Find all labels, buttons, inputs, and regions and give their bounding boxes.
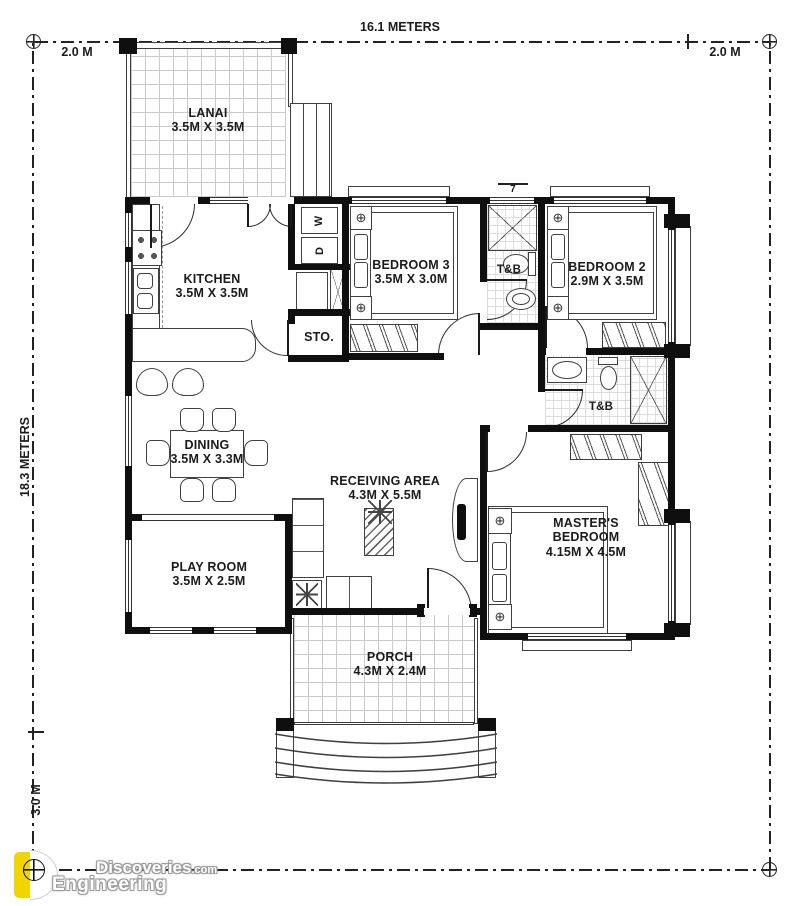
lamp-glyph: ⊕ (495, 609, 506, 625)
window-sill (522, 640, 632, 651)
door-swing (428, 568, 472, 612)
window (554, 197, 646, 204)
dimension-right-setback: 2.0 M (703, 45, 747, 59)
wall (288, 264, 350, 270)
dimension-top-width: 16.1 METERS (330, 20, 470, 34)
lanai-wall (288, 52, 293, 107)
window (125, 396, 132, 466)
nightstand-lamp-icon: ⊕ (350, 296, 372, 320)
dimension-tick (28, 731, 44, 733)
closet (570, 434, 642, 460)
dryer-icon: D (301, 237, 338, 264)
nightstand-lamp-icon: ⊕ (547, 296, 569, 320)
wall (538, 348, 546, 355)
washer-icon: W (301, 207, 338, 234)
window (210, 197, 252, 204)
property-line-right (769, 42, 771, 870)
room-name: BEDROOM 2 (544, 260, 670, 274)
room-size: 3.5M X 3.5M (128, 120, 288, 134)
window (352, 197, 446, 204)
dimension-left-setback: 2.0 M (55, 45, 99, 59)
door-leaf (487, 279, 527, 281)
window-tag: 7 (503, 184, 523, 195)
door-swing (251, 320, 287, 356)
window (125, 262, 132, 314)
bay-window (675, 226, 691, 346)
lamp-glyph: ⊕ (356, 300, 367, 316)
toilet-icon (600, 366, 617, 390)
room-label-lanai: LANAI 3.5M X 3.5M (128, 106, 288, 135)
window-sill (348, 186, 450, 197)
property-line-left (32, 42, 34, 870)
toilet-tank (598, 357, 618, 365)
wall (586, 348, 675, 355)
nightstand-lamp-icon: ⊕ (488, 508, 512, 534)
room-name: STO. (296, 330, 342, 344)
door-swing (248, 204, 271, 227)
watermark-text: Engineering (52, 874, 167, 895)
shower-icon (488, 205, 537, 251)
cased-opening (142, 514, 274, 521)
door-casing (469, 604, 477, 617)
room-size: 3.5M X 3.0M (348, 272, 474, 286)
watermark-suffix: .com (191, 864, 217, 876)
plant-icon (368, 500, 392, 524)
plant-icon (296, 583, 318, 606)
stove-icon (132, 230, 162, 266)
room-label-toilet-bath-2: T&B (577, 401, 625, 414)
survey-pin-icon (762, 34, 777, 49)
wall (538, 425, 675, 432)
logo-crosshair-icon (23, 859, 45, 881)
room-label-bedroom3: BEDROOM 3 3.5M X 3.0M (348, 258, 474, 287)
shower-icon (630, 356, 667, 424)
pillow (354, 234, 368, 260)
column (281, 38, 297, 54)
room-size: 2.9M X 3.5M (544, 274, 670, 288)
room-name: LANAI (128, 106, 288, 120)
door-leaf (290, 204, 292, 227)
closet (350, 324, 418, 352)
dining-chair (212, 478, 236, 502)
lanai-wall (135, 42, 283, 49)
window (668, 525, 675, 621)
washer-label: W (313, 215, 325, 225)
wall (664, 214, 690, 228)
room-label-toilet-bath-1: T&B (487, 264, 531, 277)
room-name: T&B (487, 264, 531, 277)
room-name: DINING (143, 438, 271, 452)
lamp-glyph: ⊕ (495, 513, 506, 529)
room-name: T&B (577, 401, 625, 414)
porch-pier-cap (478, 718, 496, 731)
dining-chair (180, 408, 204, 432)
sink-basin (512, 293, 530, 305)
door-leaf (427, 568, 429, 612)
window (125, 540, 132, 612)
wall (664, 509, 690, 523)
closet (602, 322, 666, 348)
wall (288, 316, 295, 324)
nightstand-lamp-icon: ⊕ (350, 206, 372, 230)
room-size: 3.5M X 3.3M (143, 452, 271, 466)
window-sill (550, 186, 650, 197)
bay-window (675, 521, 691, 625)
room-label-porch: PORCH 4.3M X 2.4M (318, 650, 462, 679)
room-label-dining: DINING 3.5M X 3.3M (143, 438, 271, 467)
porch-edge (294, 722, 474, 725)
wall (480, 204, 487, 282)
pillow (492, 542, 507, 570)
wall (288, 355, 348, 362)
wall (342, 353, 444, 360)
door-swing (487, 432, 527, 472)
room-name: PLAY ROOM (142, 560, 276, 574)
door-opening (248, 197, 294, 204)
porch-steps (272, 732, 500, 790)
floor-plan: 16.1 METERS 2.0 M 2.0 M 18.3 METERS 3.0 … (0, 0, 800, 906)
door-leaf (545, 389, 583, 391)
room-label-master-bedroom: MASTER'S BEDROOM 4.15M X 4.5M (532, 516, 640, 559)
lanai-steps (290, 103, 332, 197)
door-leaf (486, 432, 488, 472)
nightstand-lamp-icon: ⊕ (547, 206, 569, 230)
dimension-side-depth: 18.3 METERS (18, 402, 32, 512)
survey-pin-icon (26, 34, 41, 49)
window (125, 213, 132, 247)
room-label-receiving: RECEIVING AREA 4.3M X 5.5M (328, 474, 442, 503)
wall (538, 355, 545, 392)
door-opening (150, 197, 198, 204)
room-size: 4.3M X 5.5M (328, 488, 442, 502)
door-leaf (478, 313, 480, 355)
window (490, 197, 534, 204)
room-label-kitchen: KITCHEN 3.5M X 3.5M (148, 272, 276, 301)
porch-pier-cap (276, 718, 294, 731)
room-name: BEDROOM 3 (348, 258, 474, 272)
column (119, 38, 137, 54)
door-leaf (545, 306, 547, 348)
bar-chair (136, 368, 168, 396)
lamp-glyph: ⊕ (553, 300, 564, 316)
room-name: PORCH (318, 650, 462, 664)
room-label-storage: STO. (296, 330, 342, 344)
room-size: 3.5M X 2.5M (142, 574, 276, 588)
room-name: RECEIVING AREA (328, 474, 442, 488)
window (150, 627, 192, 634)
dryer-label: D (313, 247, 325, 255)
dining-chair (212, 408, 236, 432)
kitchen-bar-counter (132, 328, 256, 362)
pillow (551, 234, 565, 260)
bathroom-sink-icon (552, 361, 582, 379)
window (528, 633, 626, 640)
room-size: 4.3M X 2.4M (318, 664, 462, 678)
room-label-bedroom2: BEDROOM 2 2.9M X 3.5M (544, 260, 670, 289)
dining-chair (180, 478, 204, 502)
room-name: MASTER'S BEDROOM (532, 516, 640, 545)
dimension-bottom-setback: 3.0 M (29, 780, 43, 820)
room-name: KITCHEN (148, 272, 276, 286)
door-leaf (287, 320, 289, 356)
wall (664, 623, 690, 637)
dimension-tick (687, 34, 689, 49)
door-leaf (150, 204, 152, 248)
nightstand-lamp-icon: ⊕ (488, 604, 512, 630)
room-size: 3.5M X 3.5M (148, 286, 276, 300)
room-label-playroom: PLAY ROOM 3.5M X 2.5M (142, 560, 276, 589)
watermark-engineering: Engineering (52, 874, 167, 896)
door-opening (424, 608, 470, 615)
window (214, 627, 256, 634)
door-leaf (247, 204, 249, 227)
loveseat (326, 576, 372, 612)
refrigerator-icon (296, 272, 328, 312)
pillow (492, 574, 507, 602)
lamp-glyph: ⊕ (356, 210, 367, 226)
porch-edge (474, 618, 478, 724)
bar-chair (172, 368, 204, 396)
tv-icon (457, 504, 466, 540)
wall (480, 323, 545, 330)
wall (288, 309, 350, 316)
wall (285, 514, 292, 634)
wall (528, 425, 545, 432)
sofa (292, 498, 324, 578)
survey-pin-icon (762, 862, 777, 877)
lamp-glyph: ⊕ (553, 210, 564, 226)
room-size: 4.15M X 4.5M (532, 545, 640, 559)
